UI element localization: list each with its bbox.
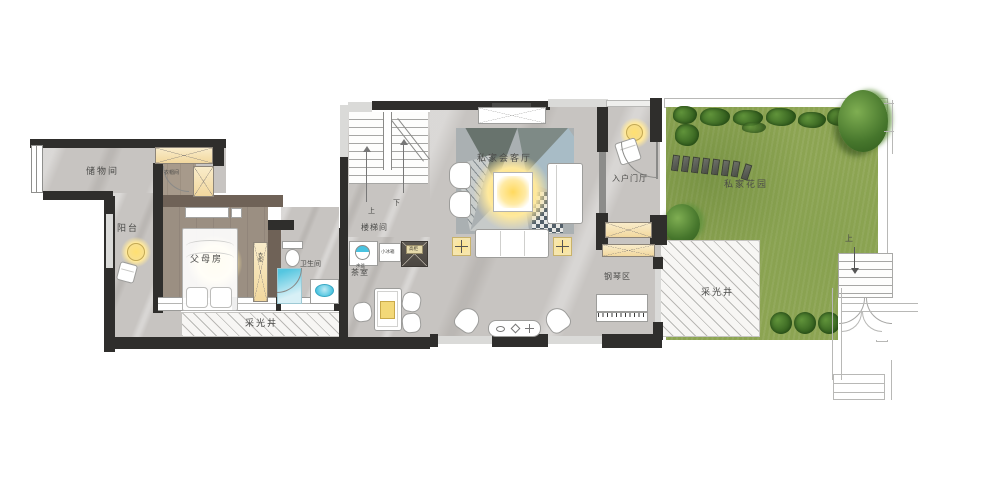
outline-band [842,303,918,312]
light-well-right-label: 采光井 [701,285,734,298]
basin-label: 水盆 [356,263,365,269]
decor-oval-icon [496,326,505,332]
piano-keys [598,313,646,317]
outline-step-line [834,392,884,393]
stair-arrow-up [366,152,367,202]
garden-step-arrow [854,247,855,269]
hedge [700,108,730,126]
floor-plan: 储物间 阳台 衣帽间 父母房 衣柜 卫生间 采光井 楼梯间 上 下 茶室 小冰箱… [0,0,1000,477]
arrow-head-down-icon [851,268,859,274]
wall [340,157,348,232]
wardrobe-wall [163,195,283,207]
window [655,269,661,323]
arrow-head-up-icon [400,139,408,145]
sofa-bottom [475,229,549,258]
sofa-seam [500,231,501,256]
stair-arrow-up [403,145,404,193]
wall [650,98,662,142]
closet-top [155,147,213,164]
foyer-label: 入户门厅 [612,173,648,184]
sofa-right [547,163,583,224]
sofa-seam [556,165,557,222]
blanket-fold [186,240,234,252]
bush [794,312,816,334]
window [31,145,43,193]
shoe-cabinet [605,222,652,238]
window [348,102,372,112]
headboard-shelf [185,207,229,218]
wall [653,257,663,269]
wall [650,215,667,245]
side-table-cross-icon [461,240,462,253]
wall [602,334,662,348]
hedge [742,122,766,133]
closet-side [193,166,214,197]
hedge [766,108,796,126]
armchair [449,162,471,189]
balcony-table [127,243,145,261]
window [106,214,113,268]
pillow [186,287,208,308]
sofa-seam [524,231,525,256]
boundary-line [892,100,893,154]
sink-basin [315,284,334,297]
window [438,336,492,344]
boundary-tick [884,131,894,132]
living-room-label: 私家会客厅 [477,151,532,164]
stairs-down-label: 下 [393,198,400,208]
tea-tray [380,301,395,319]
window [340,105,348,157]
outline-wall [832,288,842,380]
nightstand [231,208,242,218]
bathroom-label: 卫生间 [300,259,321,269]
armchair [449,191,471,218]
toilet-bowl [285,249,300,267]
stairs-up-label: 上 [368,206,375,216]
wall [153,297,158,311]
piano-body [596,294,648,312]
wall [213,139,224,166]
tea-sink [355,245,370,260]
wall [268,220,294,230]
wall [339,228,348,337]
outline-step-line [834,383,884,384]
garden-label: 私家花园 [724,177,768,190]
garden-stairs [838,253,893,298]
tree [664,204,700,244]
storage-label: 储物间 [86,164,119,177]
window [548,99,608,107]
light-well-left-label: 采光井 [245,316,278,329]
wall-gray [599,152,606,215]
hedge [798,112,826,128]
wall [43,191,113,200]
sideboard [478,107,546,124]
toilet-tank [282,241,303,249]
wardrobe-label: 衣柜 [257,252,264,262]
window [606,100,652,107]
piano-area-label: 钢琴区 [604,271,631,282]
arrow-head-up-icon [363,146,371,152]
mini-fridge-label: 小冰箱 [381,249,395,255]
window [548,336,602,344]
bush [673,106,697,124]
balcony-label: 阳台 [117,221,139,234]
side-table-cross-icon [562,240,563,253]
stair-hall-label: 楼梯间 [361,222,388,233]
pillow [210,287,232,308]
window-line [36,146,37,192]
tea-chair [401,312,422,334]
coffee-table-top [497,176,529,208]
shoe-cabinet [602,244,655,257]
outline-steps [833,374,885,400]
tree [838,90,888,152]
tall-cabinet-label: 高柜 [409,246,418,252]
garden-steps-up-label: 上 [845,233,854,244]
parents-room-label: 父母房 [190,252,223,265]
cloakroom-label: 衣帽间 [164,169,179,176]
wall [153,163,163,313]
decor-cross-icon [529,324,530,333]
outline-line [891,360,892,400]
wardrobe-cabinet [253,242,268,302]
wall [104,337,430,349]
wall [430,334,438,347]
bush [675,124,699,146]
bush [770,312,792,334]
boundary-tick [884,103,894,104]
wall [597,107,608,152]
